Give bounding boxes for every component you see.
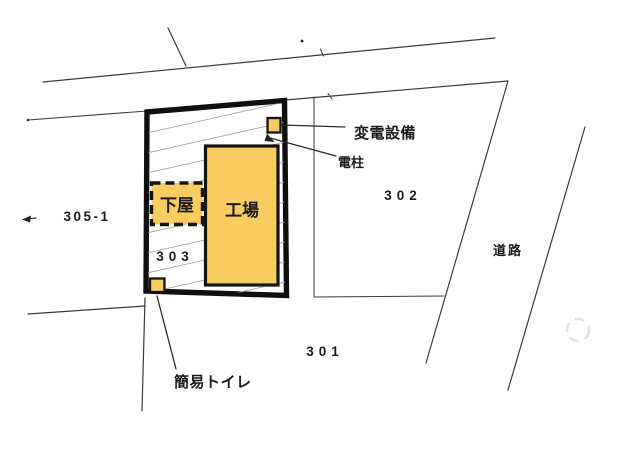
parcel-305-1-label: 305-1 — [63, 209, 110, 224]
parcel-303-label: 303 — [156, 249, 194, 264]
survey-dot — [301, 40, 304, 43]
site-plan-drawing: 工場 下屋 305-1 303 302 301 道路 変電設備 電柱 簡易トイレ — [0, 0, 640, 452]
upper-left-boundary — [28, 111, 147, 120]
parcel-302-label: 302 — [384, 188, 422, 203]
parcel302-top-boundary — [285, 81, 508, 100]
parcel302-bottom-boundary — [314, 296, 444, 297]
lean-to-label: 下屋 — [160, 196, 194, 215]
spur-line — [168, 28, 186, 66]
substation-box — [268, 118, 281, 133]
factory-label: 工場 — [225, 201, 259, 220]
lower-left-vertical-boundary — [142, 298, 145, 411]
portable-toilet-box — [150, 279, 165, 293]
parcel-301-label: 301 — [306, 344, 344, 359]
road-right-edge — [508, 127, 585, 390]
lower-left-boundary — [28, 306, 145, 314]
scan-smudge — [567, 319, 589, 341]
road-label: 道路 — [493, 243, 523, 258]
road-top-line — [43, 38, 495, 82]
portable-toilet-label: 簡易トイレ — [174, 373, 252, 391]
site-plan-page: 工場 下屋 305-1 303 302 301 道路 変電設備 電柱 簡易トイレ — [0, 0, 640, 452]
substation-label: 変電設備 — [354, 124, 416, 142]
portable-toilet-leader — [157, 296, 176, 369]
road-left-edge — [426, 81, 508, 363]
utility-pole-label: 電柱 — [338, 155, 364, 170]
small-arrow-mark — [22, 216, 36, 223]
